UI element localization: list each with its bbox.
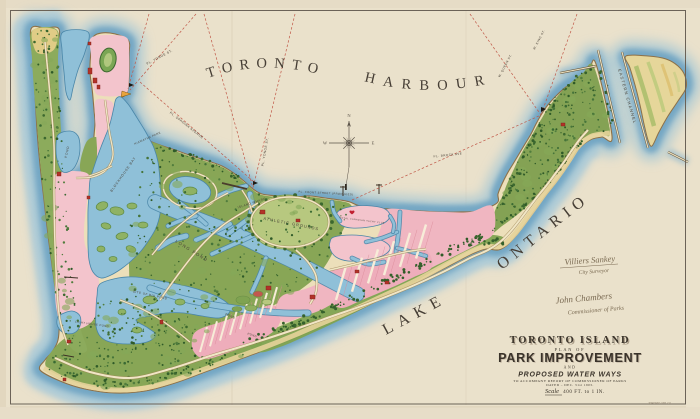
svg-text:AND: AND (564, 366, 577, 370)
svg-text:TORONTO LITH. CO.: TORONTO LITH. CO. (648, 402, 672, 405)
svg-text:TORONTO ISLAND: TORONTO ISLAND (510, 335, 631, 346)
svg-text:400 FT. to 1 IN.: 400 FT. to 1 IN. (563, 390, 605, 395)
svg-text:E: E (372, 141, 375, 146)
svg-text:PARK IMPROVEMENT: PARK IMPROVEMENT (498, 351, 642, 365)
svg-text:Scale: Scale (545, 388, 559, 395)
svg-text:DATED – DEC. 31st 1903.: DATED – DEC. 31st 1903. (546, 383, 594, 387)
svg-text:PROPOSED WATER WAYS: PROPOSED WATER WAYS (518, 372, 622, 379)
